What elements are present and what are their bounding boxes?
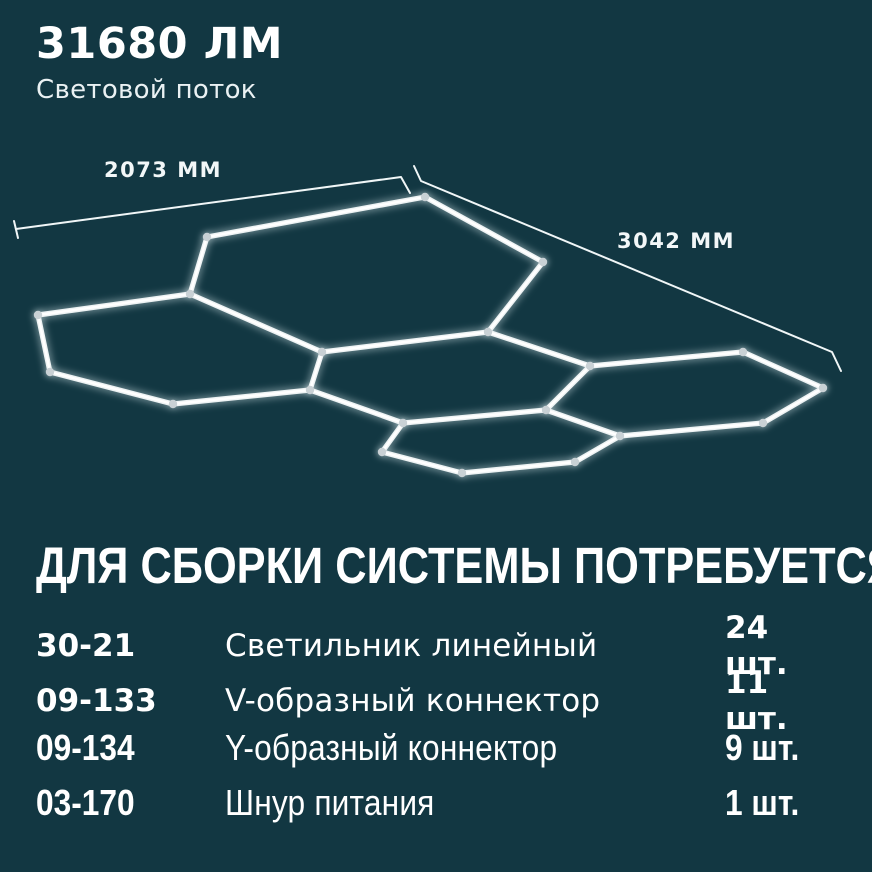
part-code: 09-134 [36,727,135,769]
parts-table: 30-21Светильник линейный24 шт.09-133V-об… [36,610,836,830]
part-qty: 9 шт. [725,727,799,769]
dimension-lines [14,166,841,371]
dimension-label-diagonal: 3042 ММ [617,229,735,253]
parts-table-row: 09-134Y-образный коннектор9 шт. [36,720,836,775]
lumens-label: Световой поток [36,75,283,105]
lumens-header: 31680 ЛМ Световой поток [36,22,283,105]
parts-section-title: ДЛЯ СБОРКИ СИСТЕМЫ ПОТРЕБУЕТСЯ [36,540,872,591]
parts-table-row: 30-21Светильник линейный24 шт. [36,610,836,665]
part-name: Светильник линейный [225,628,597,664]
lumens-value: 31680 ЛМ [36,22,283,67]
part-name: Y-образный коннектор [225,727,557,769]
product-infographic: 31680 ЛМ Световой поток 2073 ММ 3042 ММ … [0,0,872,872]
part-name: V-образный коннектор [225,683,600,719]
part-name: Шнур питания [225,782,435,824]
part-code: 30-21 [36,628,135,664]
part-qty: 1 шт. [725,782,799,824]
part-code: 09-133 [36,683,157,719]
dimension-label-width: 2073 ММ [104,158,222,182]
parts-table-row: 09-133V-образный коннектор11 шт. [36,665,836,720]
part-code: 03-170 [36,782,135,824]
parts-table-row: 03-170Шнур питания1 шт. [36,775,836,830]
